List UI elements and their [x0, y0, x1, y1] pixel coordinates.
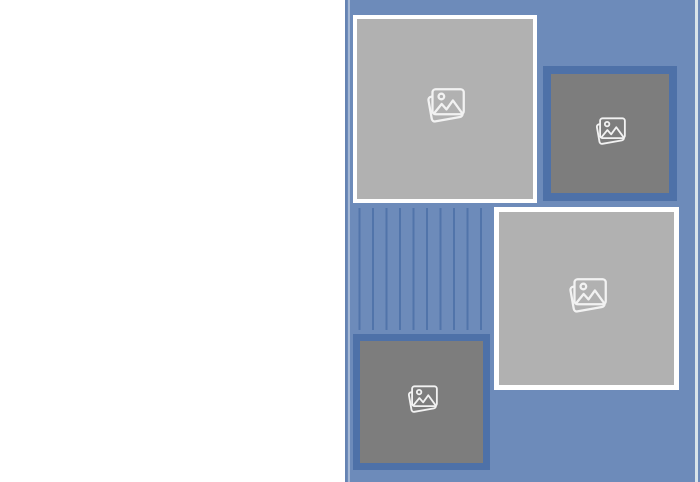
photo-stack-icon — [420, 85, 470, 133]
decorative-pinstripes — [347, 208, 488, 330]
document-page — [0, 0, 700, 482]
photo-stack-icon — [562, 275, 612, 323]
image-placeholder-2[interactable] — [543, 66, 677, 201]
photo-stack-icon — [402, 383, 442, 421]
image-placeholder-3[interactable] — [494, 207, 679, 390]
photo-stack-icon — [590, 115, 630, 153]
image-placeholder-1[interactable] — [353, 15, 537, 203]
image-placeholder-4[interactable] — [353, 334, 490, 470]
panel-right-edge-highlight — [695, 0, 698, 482]
